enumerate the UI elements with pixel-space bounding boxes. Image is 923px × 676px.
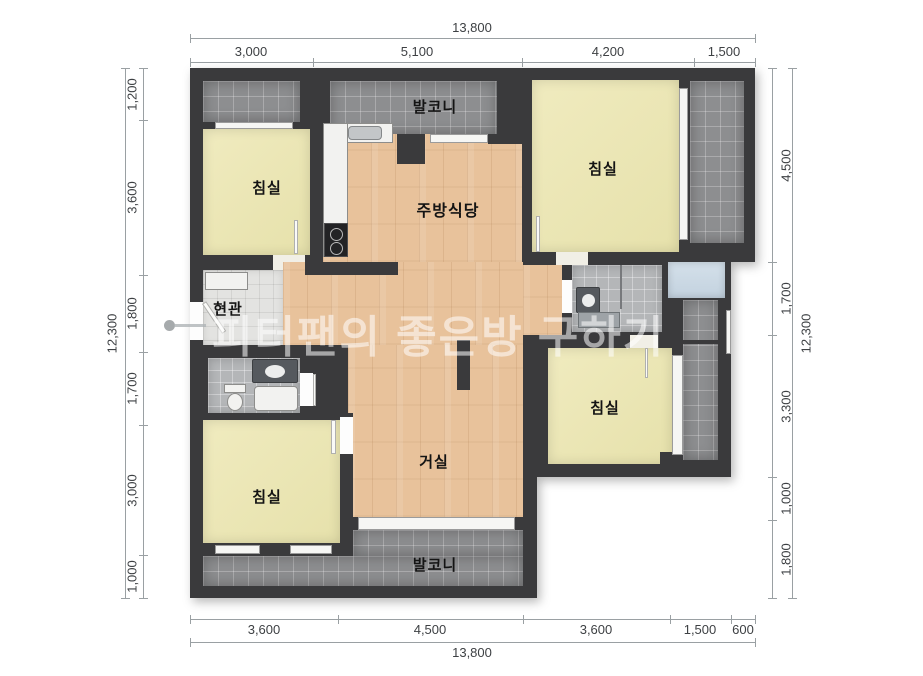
dim-tick [768, 598, 777, 599]
door-opening [630, 335, 658, 348]
watermark-logo-line [174, 324, 206, 327]
dim-tick [139, 555, 148, 556]
dim-tick [755, 638, 756, 647]
dim-line [772, 68, 773, 598]
kitchen-stove [324, 223, 348, 257]
door-opening [300, 373, 313, 406]
dim-tick [755, 34, 756, 43]
label-balcony-bottom: 발코니 [390, 554, 480, 575]
dim-tick [694, 58, 695, 67]
door-leaf [645, 348, 648, 378]
room-balcony-bottom [353, 530, 523, 556]
room-balcony-top-right [690, 81, 744, 243]
dim-tick [768, 335, 777, 336]
kitchen-sink [348, 126, 382, 140]
bathroom-sink [576, 287, 600, 313]
dim-bottom-seg: 3,600 [566, 622, 626, 637]
dim-right-total: 12,300 [799, 306, 814, 362]
dim-left-seg: 3,000 [125, 463, 140, 519]
dim-tick [139, 68, 148, 69]
label-entrance: 현관 [198, 298, 258, 319]
shower-partition [620, 265, 622, 309]
window-sill [672, 355, 683, 455]
dim-tick [190, 638, 191, 647]
dim-bottom-seg: 3,600 [234, 622, 294, 637]
dim-tick [522, 58, 523, 67]
toilet-bowl [227, 393, 243, 411]
room-balcony-mid-right [683, 300, 718, 460]
dim-tick [788, 68, 797, 69]
corridor-floor [523, 265, 562, 335]
wall-segment [683, 340, 718, 344]
dim-tick [139, 352, 148, 353]
dim-top-seg: 5,100 [387, 44, 447, 59]
bathroom-vanity [252, 359, 298, 383]
dim-tick [190, 615, 191, 624]
dim-tick [190, 34, 191, 43]
dim-tick [139, 598, 148, 599]
dim-tick [139, 120, 148, 121]
dim-bottom-seg: 4,500 [400, 622, 460, 637]
balcony-window-sill [358, 517, 515, 530]
dim-line [190, 642, 755, 643]
label-living-room: 거실 [389, 451, 479, 472]
room-balcony-top-left [203, 81, 300, 122]
dim-tick [768, 520, 777, 521]
bathroom-door-leaf [578, 312, 620, 328]
label-bedroom-mid-right: 침실 [560, 397, 650, 418]
sink-basin [582, 294, 595, 307]
bathtub [254, 386, 298, 411]
dim-left-seg: 1,800 [125, 286, 140, 342]
door-leaf [536, 216, 540, 252]
dim-top-total: 13,800 [442, 20, 502, 35]
balcony-door-sill [430, 134, 488, 143]
dim-tick [768, 68, 777, 69]
dim-bottom-seg: 600 [713, 622, 773, 637]
window-sill [726, 310, 731, 354]
dim-line [792, 68, 793, 598]
dim-top-seg: 4,200 [578, 44, 638, 59]
dim-tick [788, 598, 797, 599]
dim-tick [313, 58, 314, 67]
dim-tick [768, 262, 777, 263]
window-sill [679, 88, 688, 240]
door-opening [556, 252, 588, 265]
stove-burner [330, 242, 343, 255]
dim-left-seg: 1,000 [125, 549, 140, 605]
room-living-floor [348, 345, 523, 517]
dim-line [143, 68, 144, 598]
door-leaf [331, 420, 336, 454]
window-sill [290, 545, 332, 554]
dim-tick [755, 58, 756, 67]
vanity-sink [265, 365, 285, 378]
dim-tick [768, 477, 777, 478]
door-opening [562, 280, 572, 313]
door-opening [340, 417, 353, 454]
door-leaf [294, 220, 298, 254]
room-utility [668, 262, 725, 298]
label-bedroom-bottom-left: 침실 [222, 486, 312, 507]
window-sill [215, 122, 293, 129]
dim-left-seg: 1,200 [125, 67, 140, 123]
wall-segment [660, 452, 672, 464]
wall-segment [305, 262, 398, 275]
room-bedroom-bottom-left [203, 420, 340, 543]
toilet-tank [224, 384, 246, 393]
dim-line [190, 38, 755, 39]
dim-tick [190, 58, 191, 67]
label-bedroom-top-left: 침실 [222, 177, 312, 198]
dim-top-seg: 3,000 [221, 44, 281, 59]
dim-left-total: 12,300 [105, 306, 120, 362]
dim-tick [139, 425, 148, 426]
window-sill [215, 545, 260, 554]
dim-bottom-total: 13,800 [442, 645, 502, 660]
wall-segment [457, 340, 470, 390]
wall-segment [488, 134, 532, 144]
door-leaf [313, 374, 316, 406]
dim-left-seg: 1,700 [125, 361, 140, 417]
label-kitchen-dining: 주방식당 [403, 197, 493, 221]
label-balcony-top: 발코니 [390, 96, 480, 117]
dim-line [190, 62, 755, 63]
dim-tick [139, 275, 148, 276]
floor-plan: 발코니 침실 주방식당 침실 현관 침실 거실 침실 발코니 [190, 68, 755, 598]
dim-top-seg: 1,500 [694, 44, 754, 59]
dim-left-seg: 3,600 [125, 170, 140, 226]
label-bedroom-top-right: 침실 [558, 158, 648, 179]
stove-burner [330, 228, 343, 241]
floorplan-canvas: 13,800 3,000 5,100 4,200 1,500 3,600 4,5… [0, 0, 923, 676]
dim-tick [523, 615, 524, 624]
dim-tick [338, 615, 339, 624]
shoe-cabinet [205, 272, 248, 290]
wall-segment [397, 134, 425, 164]
